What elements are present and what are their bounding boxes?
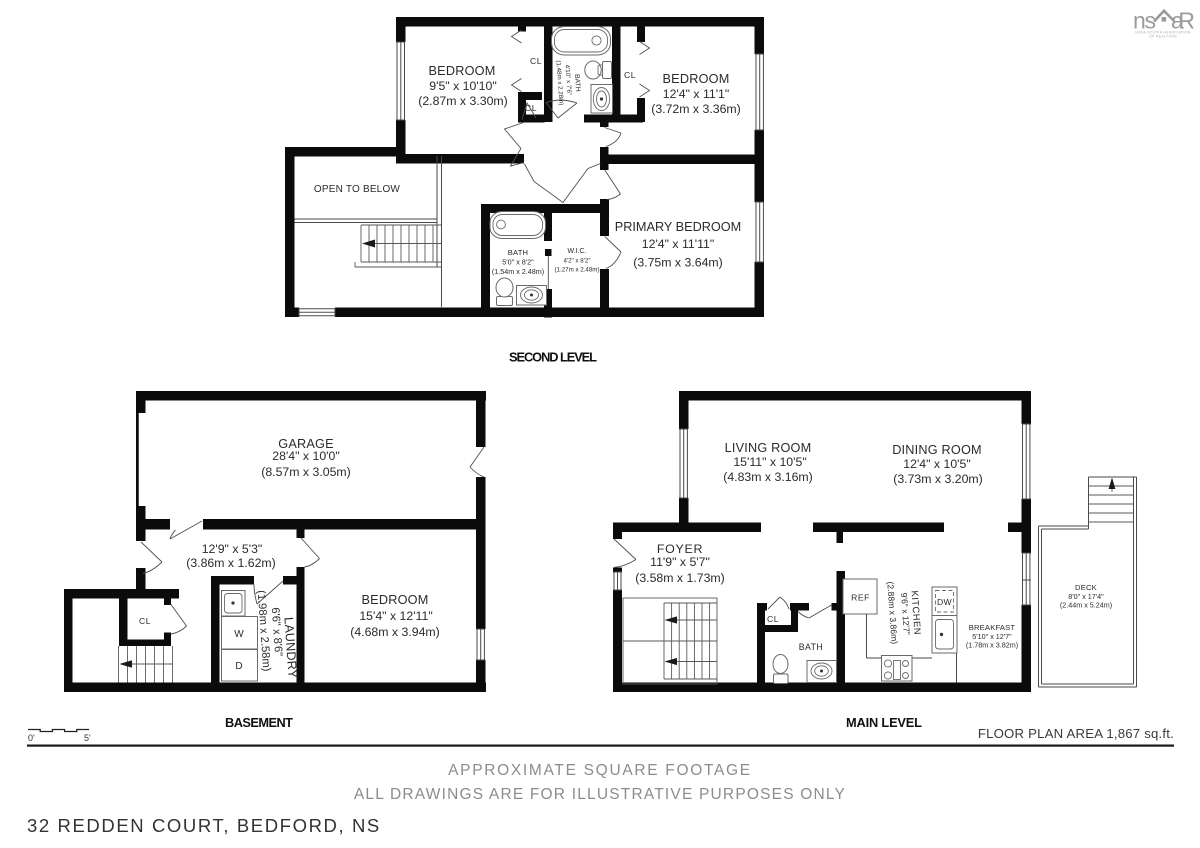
svg-text:(4.83m x 3.16m): (4.83m x 3.16m) xyxy=(723,470,813,484)
svg-text:ALL DRAWINGS ARE FOR ILLUSTRAT: ALL DRAWINGS ARE FOR ILLUSTRATIVE PURPOS… xyxy=(354,786,846,803)
svg-text:PRIMARY BEDROOM: PRIMARY BEDROOM xyxy=(615,220,741,234)
svg-text:BREAKFAST: BREAKFAST xyxy=(969,623,1016,632)
svg-text:12'9" x 5'3": 12'9" x 5'3" xyxy=(202,542,263,556)
svg-text:BASEMENT: BASEMENT xyxy=(225,715,293,730)
svg-text:(4.68m x 3.94m): (4.68m x 3.94m) xyxy=(350,625,440,639)
svg-text:(1.54m x 2.48m): (1.54m x 2.48m) xyxy=(492,267,544,276)
svg-text:12'4" x 11'1": 12'4" x 11'1" xyxy=(663,87,730,101)
svg-text:BATH: BATH xyxy=(508,248,529,257)
svg-text:APPROXIMATE SQUARE FOOTAGE: APPROXIMATE SQUARE FOOTAGE xyxy=(448,762,752,779)
svg-text:11'9" x 5'7": 11'9" x 5'7" xyxy=(650,555,710,569)
svg-text:OPEN TO BELOW: OPEN TO BELOW xyxy=(314,184,401,195)
svg-text:D: D xyxy=(235,661,242,672)
svg-text:12'4" x 10'5": 12'4" x 10'5" xyxy=(903,457,970,471)
svg-text:CL: CL xyxy=(530,56,542,66)
svg-text:(2.87m x 3.30m): (2.87m x 3.30m) xyxy=(418,94,508,108)
svg-text:BEDROOM: BEDROOM xyxy=(429,64,496,78)
svg-text:15'4" x 12'11": 15'4" x 12'11" xyxy=(359,609,432,623)
svg-text:DECK: DECK xyxy=(1075,583,1097,592)
svg-text:CL: CL xyxy=(624,70,636,80)
svg-text:BEDROOM: BEDROOM xyxy=(362,593,429,607)
svg-text:12'4" x 11'11": 12'4" x 11'11" xyxy=(642,237,714,251)
svg-text:MAIN LEVEL: MAIN LEVEL xyxy=(846,715,922,730)
svg-text:5'0" x 8'2": 5'0" x 8'2" xyxy=(502,258,534,267)
svg-text:0': 0' xyxy=(28,733,35,743)
svg-text:BEDROOM: BEDROOM xyxy=(663,72,730,86)
svg-text:(3.73m x 3.20m): (3.73m x 3.20m) xyxy=(893,472,983,486)
svg-text:LIVING ROOM: LIVING ROOM xyxy=(725,441,812,455)
svg-text:FOYER: FOYER xyxy=(657,542,703,556)
svg-text:CL: CL xyxy=(767,614,779,624)
svg-text:BATH: BATH xyxy=(573,74,581,92)
svg-text:OF REALTORS: OF REALTORS xyxy=(1149,35,1177,39)
svg-text:(3.75m x 3.64m): (3.75m x 3.64m) xyxy=(633,256,723,270)
svg-text:32 REDDEN COURT, BEDFORD, NS: 32 REDDEN COURT, BEDFORD, NS xyxy=(27,815,381,836)
svg-text:(2.44m x 5.24m): (2.44m x 5.24m) xyxy=(1060,601,1112,610)
svg-text:(1.27m x 2.48m): (1.27m x 2.48m) xyxy=(554,267,599,274)
svg-text:DW: DW xyxy=(937,597,953,607)
svg-text:(1.78m x 3.82m): (1.78m x 3.82m) xyxy=(966,641,1018,650)
svg-text:W: W xyxy=(234,629,244,640)
svg-text:DINING ROOM: DINING ROOM xyxy=(892,443,982,457)
svg-text:FLOOR PLAN AREA 1,867 sq.ft.: FLOOR PLAN AREA 1,867 sq.ft. xyxy=(978,726,1174,741)
svg-text:SECOND LEVEL: SECOND LEVEL xyxy=(509,350,597,365)
svg-text:15'11" x 10'5": 15'11" x 10'5" xyxy=(733,455,806,469)
svg-text:(3.72m x 3.36m): (3.72m x 3.36m) xyxy=(651,102,741,116)
svg-text:REF: REF xyxy=(851,593,870,603)
svg-text:CL: CL xyxy=(139,616,151,626)
svg-text:CL: CL xyxy=(525,103,537,113)
svg-text:(3.58m x 1.73m): (3.58m x 1.73m) xyxy=(635,571,725,585)
svg-text:9'5" x 10'10": 9'5" x 10'10" xyxy=(429,79,496,93)
svg-text:(8.57m x 3.05m): (8.57m x 3.05m) xyxy=(261,465,351,479)
svg-text:(3.86m x 1.62m): (3.86m x 1.62m) xyxy=(186,556,276,570)
svg-text:28'4" x 10'0": 28'4" x 10'0" xyxy=(272,449,339,463)
svg-text:5': 5' xyxy=(84,733,91,743)
svg-text:4'2" x 8'2": 4'2" x 8'2" xyxy=(563,258,590,265)
svg-text:W.I.C.: W.I.C. xyxy=(567,248,586,255)
svg-text:BATH: BATH xyxy=(799,642,823,652)
